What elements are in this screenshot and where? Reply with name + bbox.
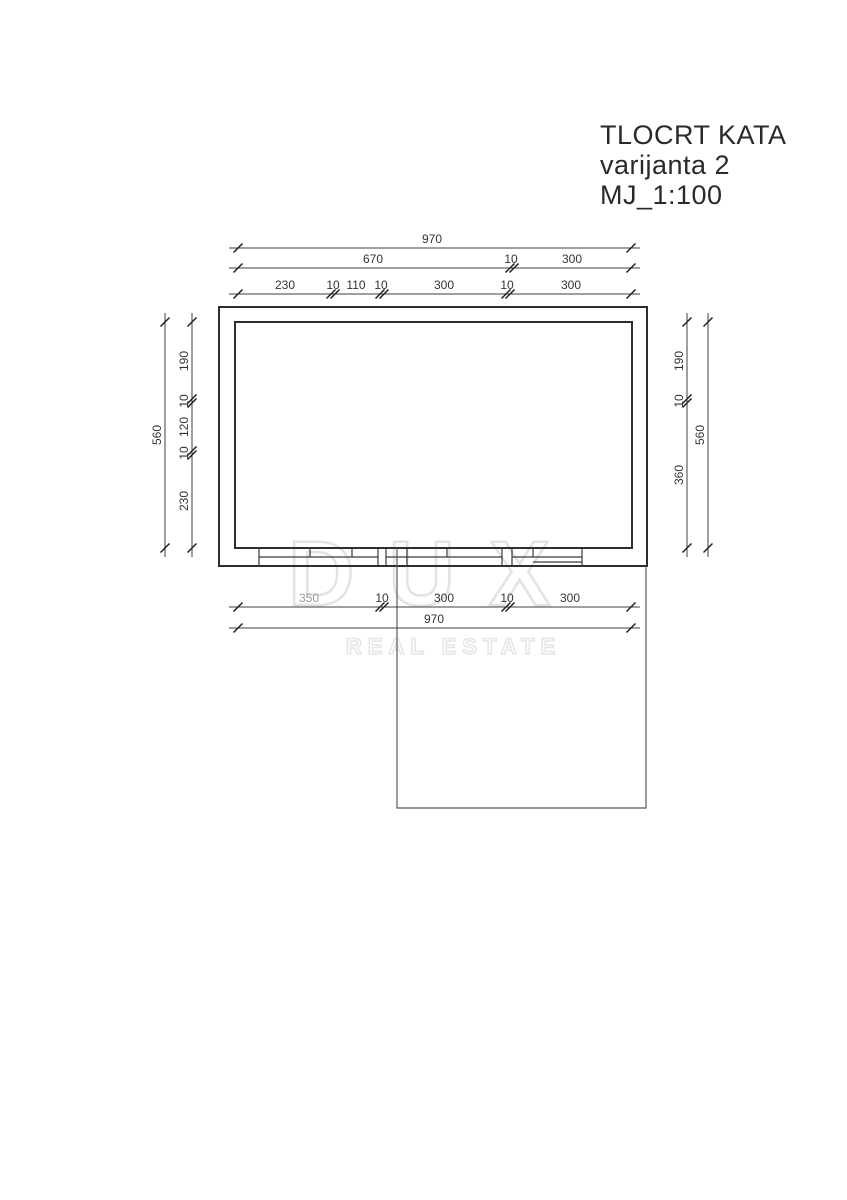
dim-label-right-10: 10 [672, 394, 686, 407]
dim-label-top-300b: 300 [434, 278, 454, 292]
dim-label-bottom-10b: 10 [500, 591, 513, 605]
dim-label-left-10b: 10 [177, 446, 191, 459]
dim-label-bottom-10a: 10 [375, 591, 388, 605]
dim-label-top-230: 230 [275, 278, 295, 292]
dim-label-right-190: 190 [672, 351, 686, 371]
floor-plan-canvas [0, 0, 847, 1200]
dim-label-left-120: 120 [177, 417, 191, 437]
dim-label-top-10b: 10 [326, 278, 339, 292]
dim-label-top-10c: 10 [374, 278, 387, 292]
dim-label-top-total: 970 [422, 232, 442, 246]
dim-label-bottom-300a: 300 [434, 591, 454, 605]
dim-label-left-total: 560 [150, 425, 164, 445]
terrace-outline [397, 548, 646, 808]
dim-label-bottom-300b: 300 [560, 591, 580, 605]
dim-label-left-10a: 10 [177, 394, 191, 407]
dim-label-left-190: 190 [177, 351, 191, 371]
dim-label-top-300c: 300 [561, 278, 581, 292]
dim-label-right-360: 360 [672, 465, 686, 485]
dim-label-top-670: 670 [363, 252, 383, 266]
outer-wall-outline [219, 307, 647, 566]
dim-label-top-10a: 10 [504, 252, 517, 266]
inner-wall-outline [235, 322, 632, 548]
dim-label-top-10d: 10 [500, 278, 513, 292]
dim-label-bottom-350: 350 [299, 591, 319, 605]
dim-label-right-total: 560 [693, 425, 707, 445]
dim-label-left-230: 230 [177, 491, 191, 511]
dim-label-top-110: 110 [346, 278, 365, 292]
dim-label-top-300a: 300 [562, 252, 582, 266]
dimension-ticks [161, 244, 713, 633]
bottom-wall-openings [259, 548, 582, 566]
floor-plan-page: DUX REAL ESTATE TLOCRT KATA varijanta 2 … [0, 0, 847, 1200]
dimension-lines [165, 248, 708, 628]
dim-label-bottom-total: 970 [424, 612, 444, 626]
building-walls [219, 307, 647, 566]
